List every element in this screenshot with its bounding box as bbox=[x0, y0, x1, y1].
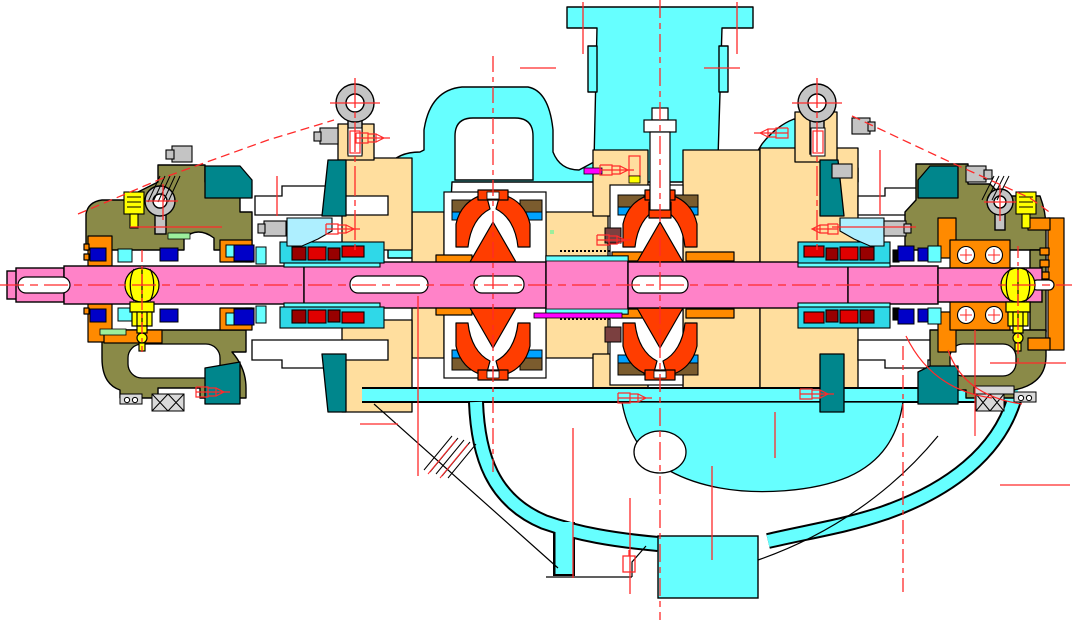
grease-fitting bbox=[124, 192, 144, 214]
gland-stud bbox=[234, 309, 254, 325]
seal-ring bbox=[804, 312, 824, 323]
hex-bolt bbox=[264, 221, 286, 236]
seal-ring bbox=[292, 310, 306, 323]
seal-ring bbox=[328, 310, 340, 322]
hex-bolt bbox=[832, 164, 852, 178]
suction-neck-lug bbox=[719, 46, 728, 92]
hatched-foot bbox=[152, 394, 184, 411]
seal-ring bbox=[840, 247, 858, 260]
seal-ring bbox=[826, 248, 838, 260]
hex-bolt bbox=[320, 128, 338, 144]
cyan-spacer bbox=[928, 246, 941, 262]
gasket bbox=[168, 233, 190, 239]
hex-bolt bbox=[884, 221, 906, 236]
shaft-sleeve-spacer bbox=[686, 252, 734, 261]
pedestal-window-right bbox=[950, 344, 1016, 376]
bearing-cover-right-arm bbox=[1028, 338, 1050, 350]
hex-bolt-cap bbox=[166, 150, 174, 159]
cyan-spacer bbox=[118, 249, 132, 262]
seal-ring bbox=[292, 247, 306, 260]
hub-sleeve bbox=[546, 256, 628, 261]
shaft-sleeve-spacer bbox=[686, 309, 734, 318]
gland-stud bbox=[160, 248, 178, 261]
cyan-spacer bbox=[928, 308, 941, 324]
cover-rib bbox=[1040, 260, 1049, 267]
cover-rib bbox=[84, 308, 89, 314]
seal-ring bbox=[840, 310, 858, 323]
bracket-wedge bbox=[205, 362, 240, 404]
gland-stud bbox=[90, 309, 106, 322]
pad bbox=[1014, 392, 1036, 402]
hatched-foot bbox=[976, 394, 1004, 411]
bracket-wedge bbox=[205, 166, 252, 198]
suction-neck-lug bbox=[588, 46, 597, 92]
gland-stud bbox=[898, 246, 914, 261]
pad-hole bbox=[124, 397, 129, 402]
marker-strip bbox=[584, 168, 602, 174]
seal-ring bbox=[804, 246, 824, 257]
cyan-spacer bbox=[256, 306, 266, 323]
seal-ring bbox=[860, 310, 874, 323]
cover-rib bbox=[1040, 248, 1049, 255]
gland-stud bbox=[234, 245, 254, 261]
vent-stud-tip bbox=[629, 176, 640, 183]
marker-strip bbox=[534, 313, 622, 318]
bracket-column bbox=[820, 354, 844, 412]
pad-hole bbox=[1026, 395, 1031, 400]
seal-ring bbox=[308, 247, 326, 260]
seal-ring bbox=[342, 246, 364, 257]
hex-bolt-cap bbox=[904, 224, 911, 233]
gland-stud bbox=[898, 309, 914, 324]
pad bbox=[120, 394, 142, 404]
pump-drawing-canvas bbox=[0, 0, 1072, 622]
hex-bolt-cap bbox=[314, 132, 321, 141]
hex-bolt-cap bbox=[258, 224, 265, 233]
hex-bolt bbox=[172, 146, 192, 162]
hex-bolt bbox=[966, 166, 986, 182]
cyan-spacer bbox=[256, 247, 266, 264]
seal-ring bbox=[342, 312, 364, 323]
cover-rib bbox=[84, 244, 89, 250]
seal-ring bbox=[328, 248, 340, 260]
seal-ring bbox=[308, 310, 326, 323]
pad-hole bbox=[1018, 395, 1023, 400]
hex-bolt bbox=[852, 118, 870, 134]
grease-fitting bbox=[1016, 192, 1036, 214]
gland-stud bbox=[160, 309, 178, 322]
seal-ring bbox=[860, 247, 874, 260]
seal-ring bbox=[826, 310, 838, 322]
gasket-dot bbox=[550, 230, 554, 234]
cover-rib bbox=[84, 254, 89, 260]
casing-arch-window bbox=[455, 118, 533, 180]
pad-hole bbox=[132, 397, 137, 402]
gland-stud bbox=[90, 248, 106, 261]
balance-bush bbox=[605, 327, 621, 342]
gasket bbox=[100, 329, 126, 335]
pump-sectional-drawing bbox=[0, 0, 1072, 622]
bearing-cover-right-arm bbox=[1028, 218, 1050, 230]
discharge-flange-block bbox=[658, 536, 758, 598]
fitting-stem bbox=[130, 214, 138, 228]
fitting-stem bbox=[1022, 214, 1030, 228]
